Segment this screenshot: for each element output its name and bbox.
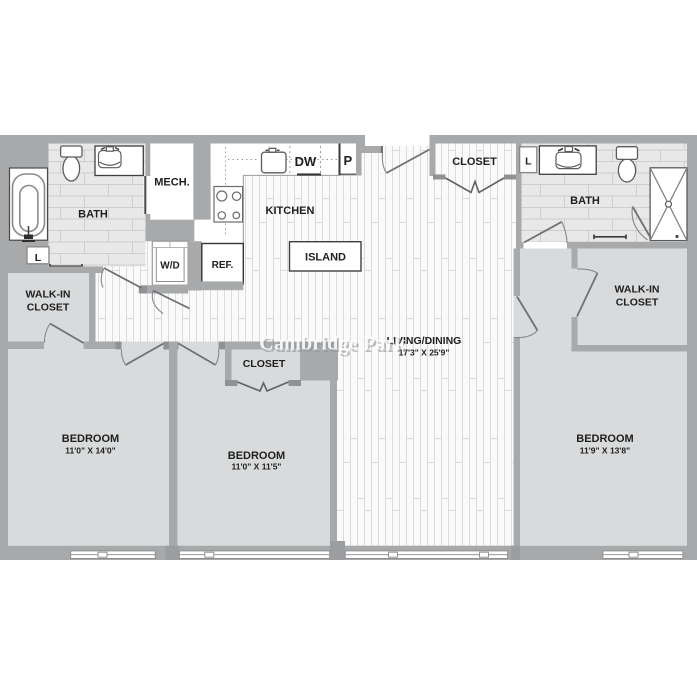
svg-text:MECH.: MECH. — [154, 177, 189, 189]
svg-text:KITCHEN: KITCHEN — [266, 205, 315, 217]
svg-text:11'0" X 14'0": 11'0" X 14'0" — [65, 446, 115, 456]
svg-text:CLOSET: CLOSET — [616, 297, 659, 309]
svg-text:L: L — [525, 156, 532, 168]
svg-text:11'9" X 13'8": 11'9" X 13'8" — [580, 446, 630, 456]
svg-text:BEDROOM: BEDROOM — [62, 433, 119, 445]
svg-text:DW: DW — [295, 154, 317, 169]
svg-text:CLOSET: CLOSET — [243, 358, 286, 370]
svg-text:WALK-IN: WALK-IN — [615, 284, 660, 296]
svg-text:Cambridge Park: Cambridge Park — [259, 333, 406, 355]
svg-text:11'0" X 11'5": 11'0" X 11'5" — [232, 462, 282, 472]
svg-text:W/D: W/D — [160, 261, 179, 272]
svg-text:BEDROOM: BEDROOM — [576, 433, 633, 445]
svg-text:WALK-IN: WALK-IN — [26, 289, 71, 301]
svg-text:CLOSET: CLOSET — [452, 156, 497, 168]
svg-text:CLOSET: CLOSET — [27, 302, 70, 314]
svg-text:BATH: BATH — [78, 209, 108, 221]
svg-text:L: L — [35, 252, 42, 264]
svg-text:BATH: BATH — [570, 195, 600, 207]
svg-text:BEDROOM: BEDROOM — [228, 450, 285, 462]
svg-text:ISLAND: ISLAND — [305, 252, 346, 264]
svg-text:REF.: REF. — [212, 260, 234, 271]
svg-text:P: P — [343, 153, 352, 168]
